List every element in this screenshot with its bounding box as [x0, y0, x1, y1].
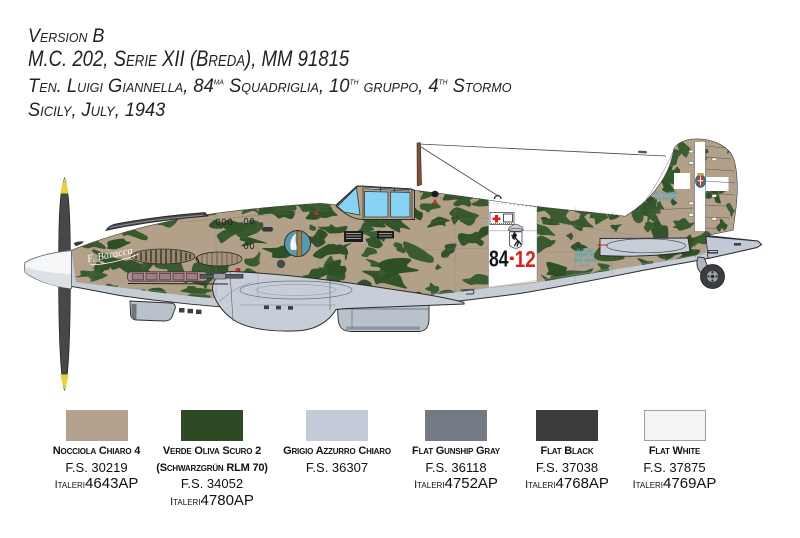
- svg-text:CU. Kg 540: CU. Kg 540: [654, 196, 677, 201]
- svg-text:A. S.: A. S.: [580, 263, 589, 268]
- svg-text:12: 12: [515, 246, 536, 272]
- svg-text:84: 84: [489, 246, 509, 272]
